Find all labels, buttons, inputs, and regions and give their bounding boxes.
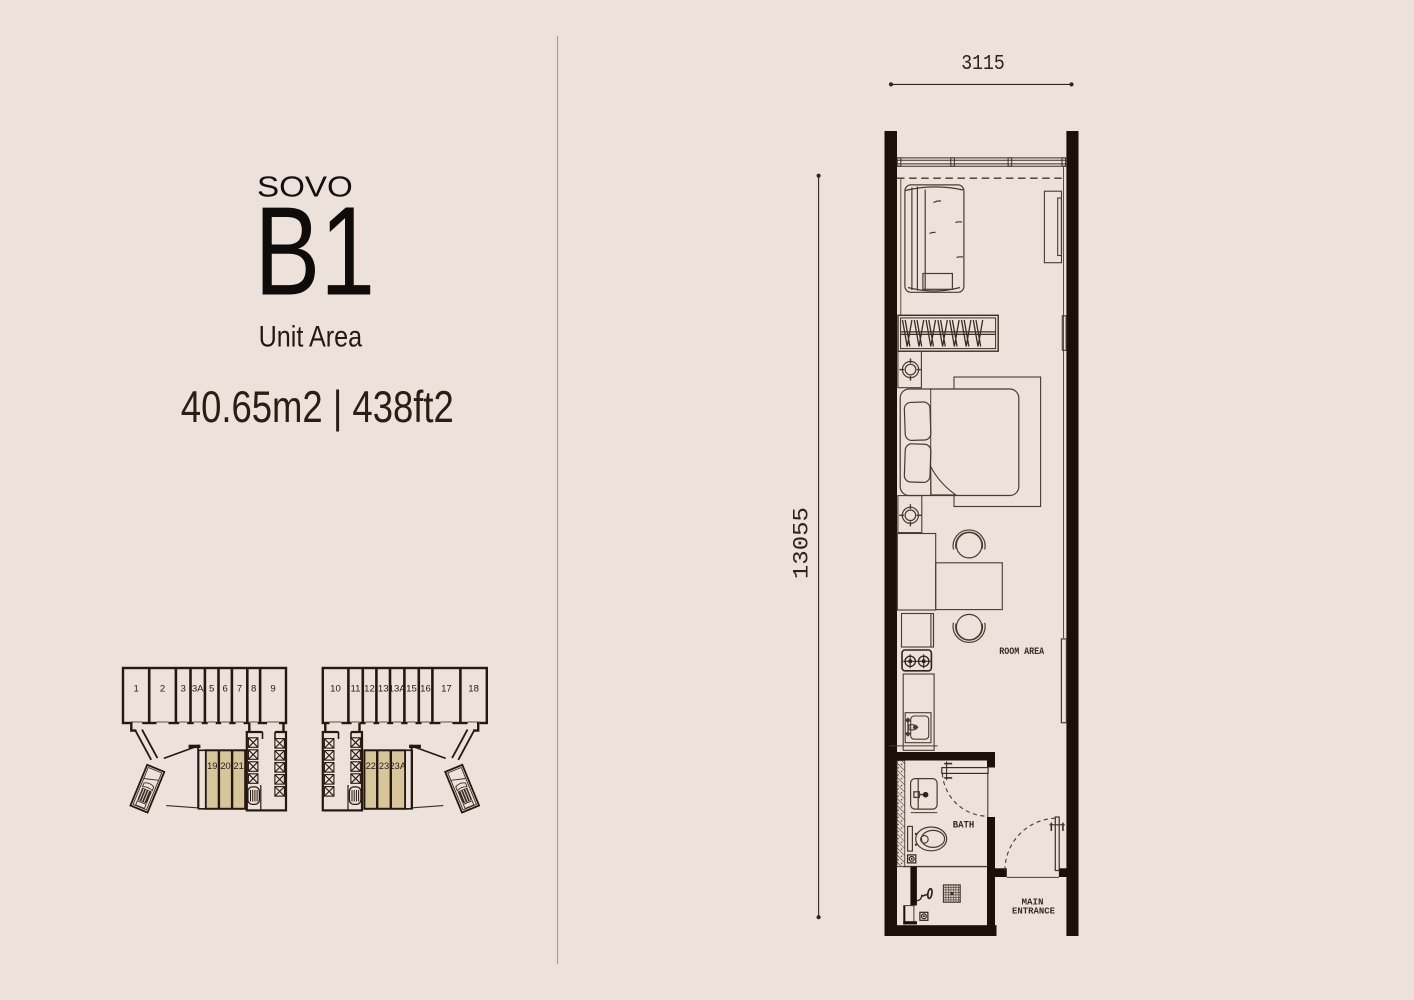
svg-text:22: 22	[366, 761, 376, 771]
svg-text:3: 3	[181, 684, 186, 695]
svg-text:3115: 3115	[961, 52, 1005, 76]
svg-text:BATH: BATH	[953, 820, 975, 832]
svg-text:ROOM AREA: ROOM AREA	[999, 647, 1044, 658]
svg-text:16: 16	[420, 684, 431, 695]
svg-text:40.65m2 | 438ft2: 40.65m2 | 438ft2	[181, 383, 454, 432]
svg-text:6: 6	[223, 684, 228, 695]
svg-text:Unit Area: Unit Area	[259, 321, 363, 354]
svg-text:20: 20	[220, 761, 230, 771]
svg-text:13A: 13A	[389, 684, 407, 695]
svg-text:5: 5	[209, 684, 214, 695]
svg-text:2: 2	[160, 684, 165, 695]
svg-text:23: 23	[379, 761, 389, 771]
svg-text:13055: 13055	[790, 507, 815, 579]
svg-text:12: 12	[364, 684, 375, 695]
svg-text:9: 9	[270, 684, 275, 695]
svg-text:8: 8	[251, 684, 256, 695]
svg-text:17: 17	[441, 684, 452, 695]
svg-text:11: 11	[351, 684, 361, 695]
svg-text:23A: 23A	[390, 761, 407, 771]
svg-text:ENTRANCE: ENTRANCE	[1012, 905, 1055, 916]
svg-text:1: 1	[134, 684, 139, 695]
svg-text:21: 21	[234, 761, 244, 771]
svg-text:13: 13	[378, 684, 389, 695]
svg-text:19: 19	[207, 761, 217, 771]
svg-text:18: 18	[468, 684, 479, 695]
svg-text:10: 10	[330, 684, 341, 695]
svg-text:3A: 3A	[192, 684, 204, 695]
svg-text:15: 15	[406, 684, 417, 695]
svg-text:7: 7	[237, 684, 242, 695]
svg-text:B1: B1	[255, 179, 376, 321]
